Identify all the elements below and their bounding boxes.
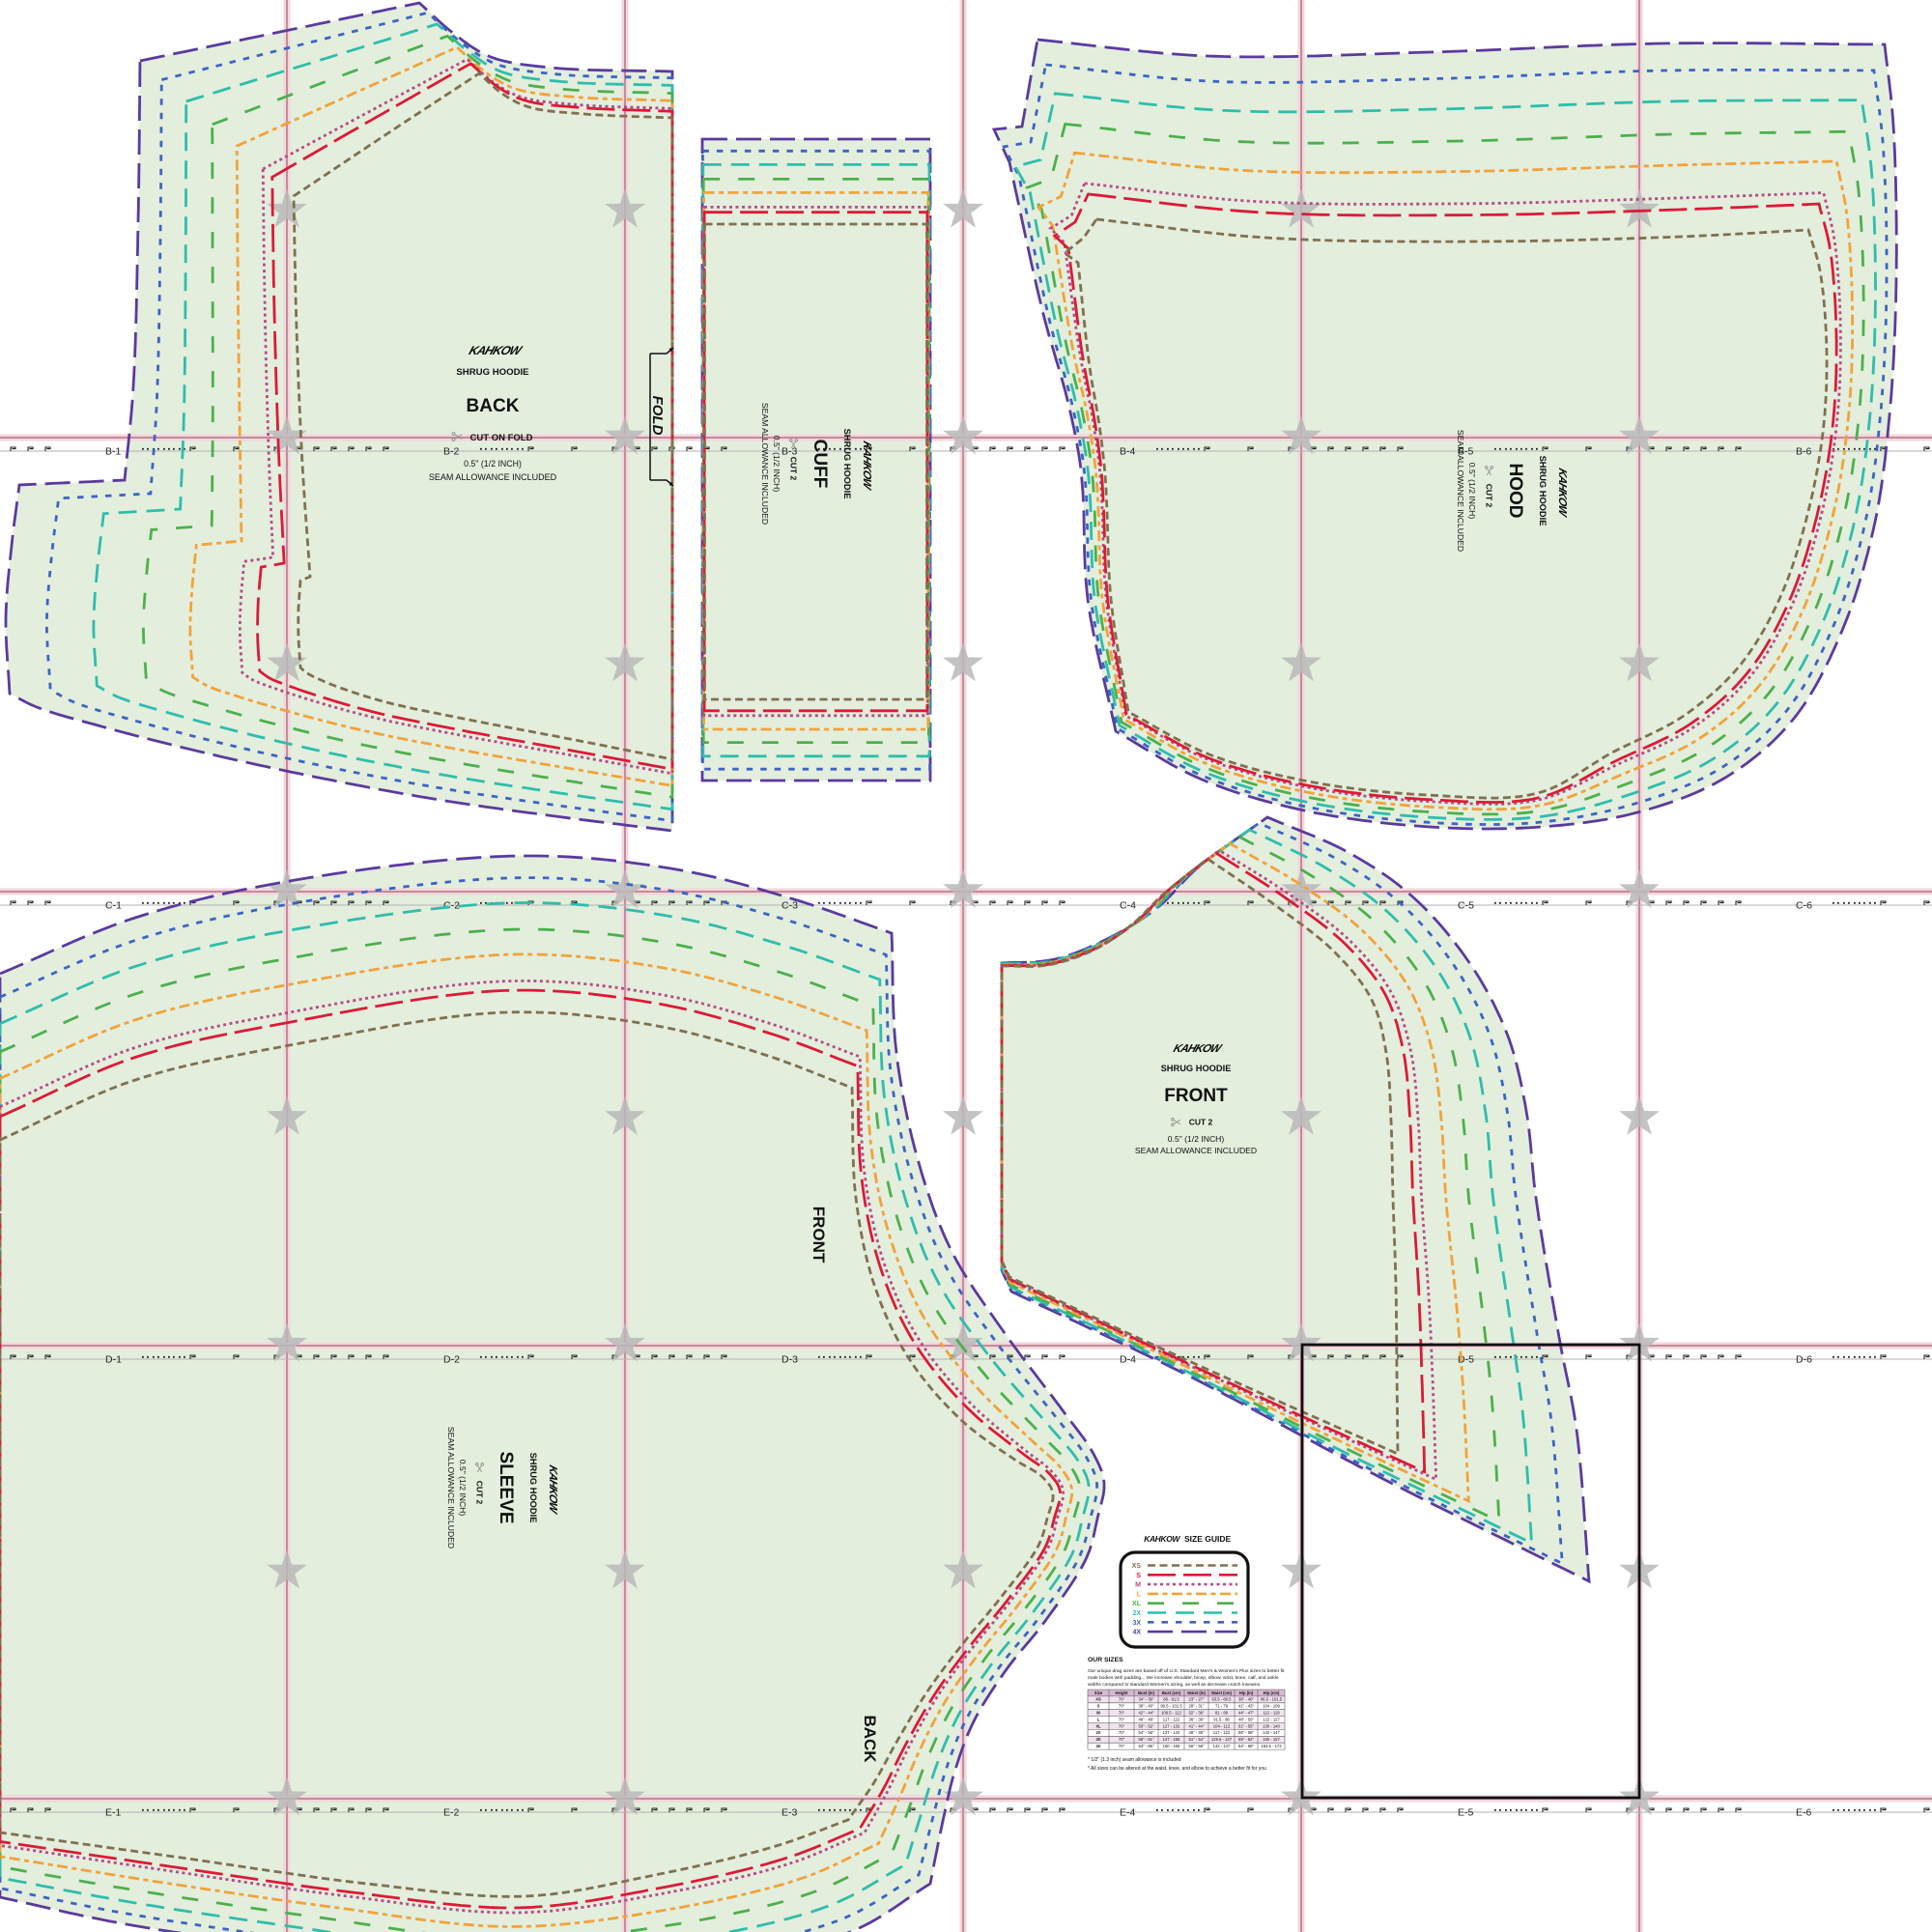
svg-text:FOLD: FOLD (649, 396, 666, 436)
svg-text:142 - 147: 142 - 147 (1213, 1744, 1231, 1748)
svg-text:CUFF: CUFF (810, 440, 830, 489)
svg-text:36" - 38": 36" - 38" (1188, 1717, 1205, 1721)
svg-text:38" - 40": 38" - 40" (1238, 1697, 1255, 1702)
svg-text:0.5" (1/2 INCH): 0.5" (1/2 INCH) (1168, 1134, 1225, 1144)
svg-text:E-6: E-6 (1796, 1807, 1812, 1819)
svg-text:XS: XS (1095, 1697, 1101, 1702)
svg-text:137 - 142: 137 - 142 (1163, 1730, 1180, 1735)
svg-text:3X: 3X (1095, 1737, 1100, 1742)
svg-text:SEAM ALLOWANCE INCLUDED: SEAM ALLOWANCE INCLUDED (429, 472, 557, 482)
svg-text:0.5" (1/2 INCH): 0.5" (1/2 INCH) (1467, 463, 1477, 520)
svg-text:117 - 122: 117 - 122 (1163, 1717, 1180, 1721)
svg-text:SEAM ALLOWANCE INCLUDED: SEAM ALLOWANCE INCLUDED (1456, 430, 1465, 552)
svg-text:KAHKOW: KAHKOW (1556, 467, 1569, 519)
svg-text:SHRUG HOODIE: SHRUG HOODIE (456, 367, 529, 378)
svg-text:C-6: C-6 (1796, 900, 1812, 912)
svg-text:SEAM ALLOWANCE INCLUDED: SEAM ALLOWANCE INCLUDED (760, 403, 770, 525)
svg-text:KAHKOW: KAHKOW (468, 343, 525, 357)
svg-text:E-2: E-2 (443, 1807, 460, 1819)
svg-text:SEAM ALLOWANCE INCLUDED: SEAM ALLOWANCE INCLUDED (446, 1427, 456, 1548)
svg-text:L: L (1097, 1717, 1100, 1721)
svg-text:130 - 140: 130 - 140 (1263, 1723, 1280, 1728)
svg-text:41" - 44": 41" - 44" (1188, 1723, 1205, 1728)
svg-text:104 - 112: 104 - 112 (1213, 1723, 1231, 1728)
svg-text:56" - 58": 56" - 58" (1238, 1730, 1255, 1735)
svg-text:SLEEVE: SLEEVE (496, 1452, 516, 1524)
svg-text:SHRUG HOODIE: SHRUG HOODIE (528, 1453, 538, 1523)
svg-text:C-1: C-1 (105, 900, 122, 912)
svg-text:FRONT: FRONT (810, 1207, 828, 1264)
svg-text:* All sizes can be altered at: * All sizes can be altered at the waist,… (1088, 1766, 1266, 1772)
svg-text:48" - 50": 48" - 50" (1238, 1717, 1255, 1721)
svg-text:Waist (cm): Waist (cm) (1211, 1690, 1233, 1695)
svg-text:Size: Size (1094, 1690, 1103, 1695)
svg-text:142 - 147: 142 - 147 (1263, 1730, 1280, 1735)
svg-text:BACK: BACK (861, 1715, 879, 1763)
svg-text:E-3: E-3 (781, 1807, 798, 1819)
svg-text:CUT ON FOLD: CUT ON FOLD (470, 433, 533, 443)
svg-text:46" - 48": 46" - 48" (1188, 1730, 1205, 1735)
svg-text:51" - 55": 51" - 55" (1238, 1723, 1255, 1728)
svg-text:B-1: B-1 (105, 446, 122, 458)
svg-text:64" - 68": 64" - 68" (1238, 1744, 1255, 1748)
svg-text:54" - 56": 54" - 56" (1138, 1730, 1154, 1735)
svg-text:SHRUG HOODIE: SHRUG HOODIE (842, 429, 852, 499)
svg-text:D-6: D-6 (1796, 1354, 1812, 1366)
svg-text:M: M (1135, 1582, 1141, 1589)
svg-text:B-2: B-2 (443, 446, 460, 458)
svg-text:SIZE GUIDE: SIZE GUIDE (1184, 1534, 1232, 1544)
svg-text:Our unique drag sizes are base: Our unique drag sizes are based off of U… (1088, 1668, 1285, 1674)
svg-text:XL: XL (1095, 1723, 1101, 1728)
svg-text:70": 70" (1119, 1737, 1125, 1742)
svg-text:32" - 36": 32" - 36" (1188, 1711, 1205, 1716)
svg-text:112 - 119: 112 - 119 (1263, 1711, 1280, 1716)
svg-text:* 1/2" (1.3 inch) seam allowan: * 1/2" (1.3 inch) seam allowance is incl… (1088, 1757, 1181, 1763)
svg-text:129.5 - 137: 129.5 - 137 (1211, 1737, 1233, 1742)
svg-text:HOOD: HOOD (1505, 464, 1525, 519)
svg-text:70": 70" (1119, 1730, 1125, 1735)
svg-text:Hip (in): Hip (in) (1239, 1690, 1254, 1695)
svg-text:28" - 31": 28" - 31" (1188, 1704, 1205, 1709)
svg-text:160 - 165: 160 - 165 (1163, 1744, 1180, 1748)
svg-text:81 - 89: 81 - 89 (1215, 1711, 1229, 1716)
svg-text:B-4: B-4 (1120, 446, 1136, 458)
svg-text:L: L (1137, 1591, 1142, 1598)
svg-text:70": 70" (1119, 1744, 1125, 1748)
svg-text:CUT 2: CUT 2 (1485, 484, 1494, 508)
svg-text:50" - 52": 50" - 52" (1138, 1723, 1154, 1728)
svg-text:male bodies with padding... We: male bodies with padding... We increase … (1088, 1675, 1279, 1681)
svg-text:E-4: E-4 (1120, 1807, 1136, 1819)
svg-text:C-5: C-5 (1458, 900, 1474, 912)
svg-text:162.5 - 173: 162.5 - 173 (1261, 1744, 1282, 1748)
svg-text:91.5 - 96: 91.5 - 96 (1213, 1717, 1230, 1721)
svg-text:59" - 62": 59" - 62" (1238, 1737, 1255, 1742)
svg-text:Bust (in): Bust (in) (1138, 1690, 1155, 1695)
svg-text:S: S (1097, 1704, 1100, 1709)
svg-text:D-4: D-4 (1120, 1354, 1136, 1366)
svg-text:3X: 3X (1132, 1620, 1141, 1627)
svg-text:C-4: C-4 (1120, 900, 1136, 912)
svg-text:150 - 157: 150 - 157 (1263, 1737, 1280, 1742)
svg-text:CUT 2: CUT 2 (1189, 1118, 1213, 1127)
svg-text:SEAM ALLOWANCE INCLUDED: SEAM ALLOWANCE INCLUDED (1135, 1146, 1257, 1155)
svg-text:4X: 4X (1095, 1744, 1100, 1748)
svg-text:58" - 61": 58" - 61" (1138, 1737, 1154, 1742)
svg-text:147 - 155: 147 - 155 (1163, 1737, 1180, 1742)
svg-text:KAHKOW: KAHKOW (1144, 1534, 1180, 1544)
svg-text:D-2: D-2 (443, 1354, 460, 1366)
svg-text:CUT 2: CUT 2 (475, 1481, 485, 1505)
svg-text:38" - 40": 38" - 40" (1138, 1704, 1154, 1709)
svg-text:XS: XS (1132, 1563, 1142, 1570)
svg-text:S: S (1136, 1573, 1141, 1579)
svg-text:70": 70" (1119, 1711, 1125, 1716)
svg-text:51" - 54": 51" - 54" (1188, 1737, 1205, 1742)
svg-text:70": 70" (1119, 1723, 1125, 1728)
svg-text:70": 70" (1119, 1704, 1125, 1709)
svg-text:63" - 65": 63" - 65" (1138, 1744, 1154, 1748)
svg-text:56" - 58": 56" - 58" (1188, 1744, 1205, 1748)
svg-text:widths compared to standard Wo: widths compared to standard Women's sizi… (1088, 1682, 1261, 1688)
svg-text:OUR SIZES: OUR SIZES (1088, 1657, 1123, 1663)
svg-text:127 - 132: 127 - 132 (1163, 1723, 1180, 1728)
svg-text:70": 70" (1119, 1697, 1125, 1702)
svg-text:104 - 109: 104 - 109 (1263, 1704, 1280, 1709)
svg-text:XL: XL (1132, 1601, 1142, 1607)
svg-text:4X: 4X (1132, 1630, 1141, 1636)
svg-text:CUT 2: CUT 2 (789, 457, 799, 481)
svg-text:86 - 91.5: 86 - 91.5 (1163, 1697, 1179, 1702)
svg-text:2X: 2X (1095, 1730, 1100, 1735)
svg-text:23" - 27": 23" - 27" (1188, 1697, 1205, 1702)
svg-text:34" - 36": 34" - 36" (1138, 1697, 1154, 1702)
svg-text:B-6: B-6 (1796, 446, 1812, 458)
svg-text:Waist (in): Waist (in) (1187, 1690, 1206, 1695)
svg-text:0.5" (1/2 INCH): 0.5" (1/2 INCH) (464, 459, 522, 469)
svg-text:41" - 43": 41" - 43" (1238, 1704, 1255, 1709)
svg-text:96.5 - 101.5: 96.5 - 101.5 (1160, 1704, 1182, 1709)
svg-text:96.5 - 101.5: 96.5 - 101.5 (1261, 1697, 1283, 1702)
svg-text:C-3: C-3 (781, 900, 798, 912)
svg-text:E-5: E-5 (1458, 1807, 1474, 1819)
svg-text:70": 70" (1119, 1717, 1125, 1721)
svg-text:KAHKOW: KAHKOW (547, 1463, 559, 1516)
svg-text:KAHKOW: KAHKOW (1172, 1042, 1224, 1055)
svg-text:D-3: D-3 (781, 1354, 798, 1366)
svg-text:Hip (cm): Hip (cm) (1264, 1690, 1280, 1695)
svg-text:2X: 2X (1132, 1610, 1141, 1617)
svg-text:BACK: BACK (467, 396, 520, 416)
svg-text:Bust (cm): Bust (cm) (1162, 1690, 1181, 1695)
svg-text:C-2: C-2 (443, 900, 460, 912)
svg-text:122 - 127: 122 - 127 (1263, 1717, 1280, 1721)
svg-text:SHRUG HOODIE: SHRUG HOODIE (1161, 1064, 1232, 1073)
svg-text:44" - 47": 44" - 47" (1238, 1711, 1255, 1716)
svg-text:E-1: E-1 (105, 1807, 122, 1819)
svg-text:71 - 79: 71 - 79 (1215, 1704, 1229, 1709)
svg-text:Height: Height (1115, 1690, 1128, 1695)
svg-text:SHRUG HOODIE: SHRUG HOODIE (1538, 456, 1548, 526)
svg-text:0.5" (1/2 INCH): 0.5" (1/2 INCH) (458, 1460, 468, 1517)
svg-text:FRONT: FRONT (1164, 1086, 1228, 1106)
svg-text:M: M (1096, 1711, 1100, 1716)
svg-text:0.5" (1/2 INCH): 0.5" (1/2 INCH) (772, 436, 781, 493)
svg-text:63.5 - 68.5: 63.5 - 68.5 (1211, 1697, 1232, 1702)
svg-text:KAHKOW: KAHKOW (861, 440, 873, 492)
svg-text:D-1: D-1 (105, 1354, 122, 1366)
svg-text:117 - 122: 117 - 122 (1213, 1730, 1231, 1735)
svg-text:42" - 44": 42" - 44" (1138, 1711, 1154, 1716)
svg-text:46" - 48": 46" - 48" (1138, 1717, 1154, 1721)
svg-text:106.5 - 112: 106.5 - 112 (1161, 1711, 1182, 1716)
